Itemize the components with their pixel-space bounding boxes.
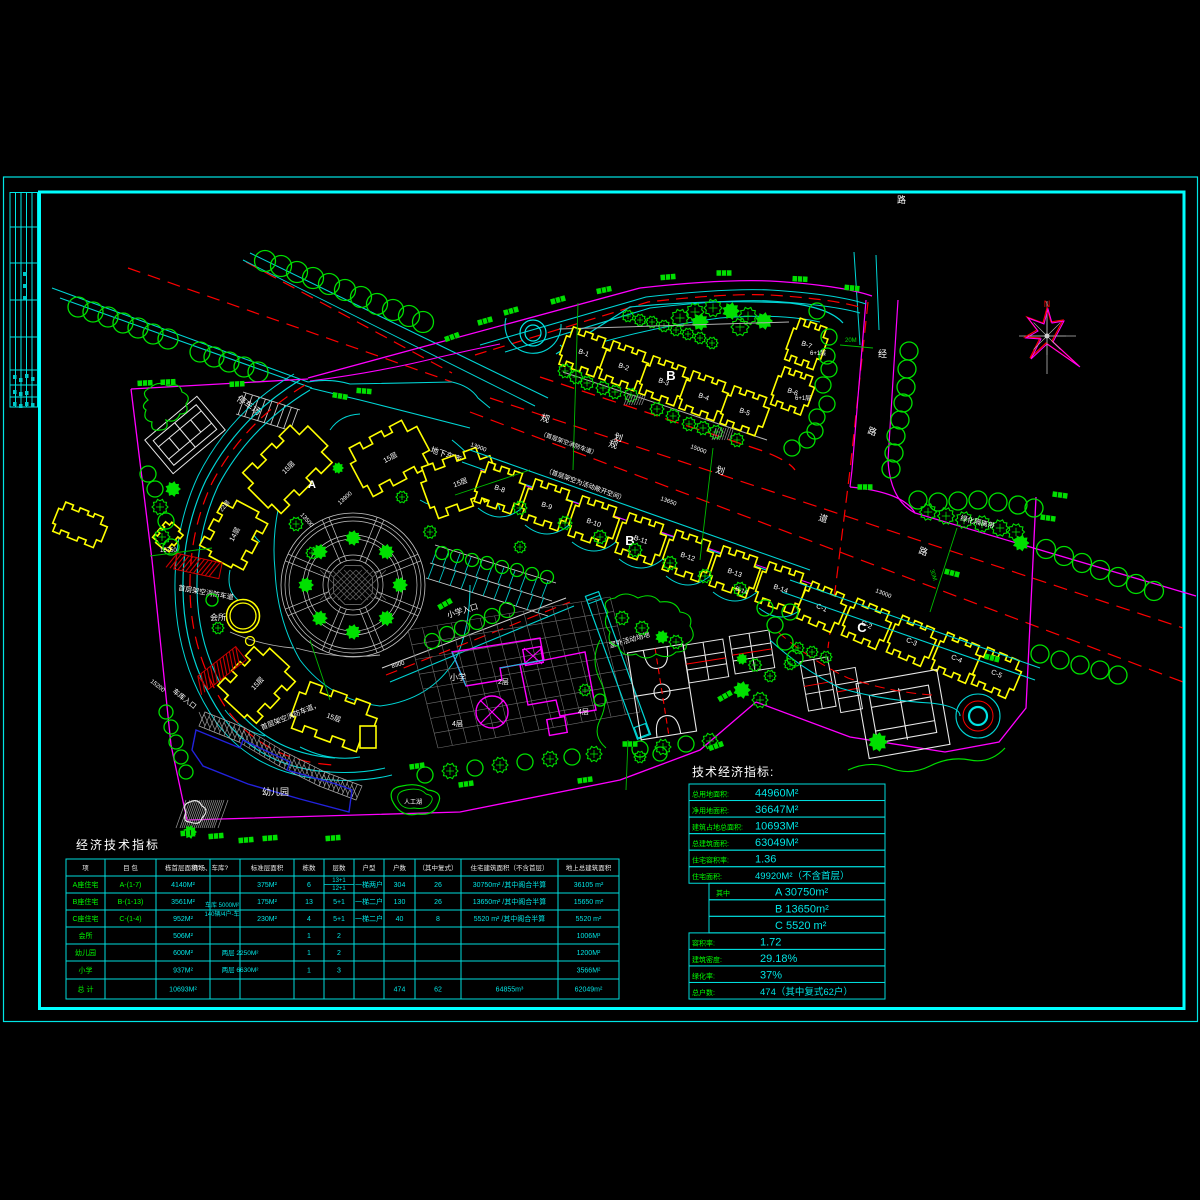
svg-text:幼儿园: 幼儿园 xyxy=(262,786,289,797)
svg-text:6+1层: 6+1层 xyxy=(795,395,811,402)
svg-text:2: 2 xyxy=(337,950,341,957)
svg-text:净用地面积:: 净用地面积: xyxy=(692,806,729,815)
svg-text:2: 2 xyxy=(337,933,341,940)
svg-text:总建筑面积:: 总建筑面积: xyxy=(692,839,729,848)
svg-text:3: 3 xyxy=(337,968,341,975)
svg-text:3566M²: 3566M² xyxy=(577,968,601,975)
svg-text:A座住宅: A座住宅 xyxy=(73,880,99,889)
svg-text:1: 1 xyxy=(307,968,311,975)
svg-text:15650 m²: 15650 m² xyxy=(574,899,604,906)
svg-text:4140M²: 4140M² xyxy=(171,882,195,889)
svg-text:64855m³: 64855m³ xyxy=(496,987,524,994)
svg-text:62: 62 xyxy=(434,987,442,994)
svg-text:项: 项 xyxy=(82,864,89,872)
svg-text:B座住宅: B座住宅 xyxy=(73,897,99,906)
svg-text:建筑占地总面积:: 建筑占地总面积: xyxy=(692,823,743,832)
svg-text:车库 5000M²: 车库 5000M² xyxy=(205,901,239,909)
svg-text:经: 经 xyxy=(878,348,887,359)
svg-text:路: 路 xyxy=(897,194,906,205)
svg-text:175M²: 175M² xyxy=(257,899,278,906)
svg-text:（其中复式）: （其中复式） xyxy=(419,863,458,872)
svg-text:住宅建筑面积（不含首层）: 住宅建筑面积（不含首层） xyxy=(471,863,549,872)
svg-text:住宅容积率:: 住宅容积率: xyxy=(692,856,729,865)
svg-text:4: 4 xyxy=(307,916,311,923)
svg-text:栋数: 栋数 xyxy=(303,863,317,872)
svg-text:幼儿园: 幼儿园 xyxy=(75,948,96,957)
svg-text:总用地面积:: 总用地面积: xyxy=(692,790,729,799)
svg-text:44960M²: 44960M² xyxy=(755,788,799,800)
svg-text:人工湖: 人工湖 xyxy=(404,798,422,806)
svg-text:474: 474 xyxy=(394,987,406,994)
svg-text:10693M²: 10693M² xyxy=(755,821,799,833)
svg-text:B-(1-13): B-(1-13) xyxy=(118,899,144,906)
svg-text:建筑密度:: 建筑密度: xyxy=(692,955,722,964)
svg-text:26: 26 xyxy=(434,882,442,889)
svg-text:两层 2250M²: 两层 2250M² xyxy=(222,949,260,957)
svg-text:62049m²: 62049m² xyxy=(575,987,603,994)
svg-text:技术经济指标:: 技术经济指标: xyxy=(692,764,774,779)
svg-text:5520 m²: 5520 m² xyxy=(576,916,602,923)
svg-text:容积率:: 容积率: xyxy=(692,938,715,947)
svg-text:绿化率:: 绿化率: xyxy=(692,971,715,980)
svg-text:12+1: 12+1 xyxy=(332,886,346,892)
svg-text:经济技术指标: 经济技术指标 xyxy=(76,837,160,852)
svg-text:13650m² /其中阁合半算: 13650m² /其中阁合半算 xyxy=(473,897,547,906)
svg-text:总户数:: 总户数: xyxy=(692,988,715,997)
svg-text:8: 8 xyxy=(436,916,440,923)
svg-text:小学: 小学 xyxy=(450,672,466,682)
svg-text:A: A xyxy=(308,479,316,491)
svg-text:5+1: 5+1 xyxy=(333,899,345,906)
svg-text:1200M²: 1200M² xyxy=(577,950,601,957)
svg-text:A 30750m²: A 30750m² xyxy=(775,887,829,899)
svg-text:1: 1 xyxy=(307,933,311,940)
svg-text:一梯二户: 一梯二户 xyxy=(355,914,383,923)
svg-text:937M²: 937M² xyxy=(173,968,194,975)
svg-text:会所: 会所 xyxy=(210,612,226,622)
svg-text:13: 13 xyxy=(305,899,313,906)
svg-text:130: 130 xyxy=(394,899,406,906)
svg-text:C座住宅: C座住宅 xyxy=(72,914,98,923)
svg-text:标准层面积: 标准层面积 xyxy=(251,863,284,872)
svg-text:C 5520 m²: C 5520 m² xyxy=(775,920,827,932)
svg-text:230M²: 230M² xyxy=(257,916,278,923)
svg-text:B: B xyxy=(666,368,675,383)
svg-text:304: 304 xyxy=(394,882,406,889)
svg-text:5+1: 5+1 xyxy=(333,916,345,923)
svg-text:地上总建筑面积: 地上总建筑面积 xyxy=(566,863,612,872)
svg-text:1006M³: 1006M³ xyxy=(577,933,601,940)
svg-text:26: 26 xyxy=(434,899,442,906)
svg-text:户数: 户数 xyxy=(393,863,407,872)
svg-text:15750: 15750 xyxy=(160,548,177,554)
svg-text:30750m² /其中阁合半算: 30750m² /其中阁合半算 xyxy=(473,880,547,889)
svg-text:目 包: 目 包 xyxy=(123,863,138,872)
svg-text:小学: 小学 xyxy=(79,966,93,975)
svg-text:63049M²: 63049M² xyxy=(755,837,799,849)
svg-text:4层: 4层 xyxy=(452,720,463,728)
svg-text:3561M²: 3561M² xyxy=(171,899,195,906)
svg-text:住宅面积:: 住宅面积: xyxy=(692,872,722,881)
svg-text:C: C xyxy=(857,620,867,635)
svg-text:952M²: 952M² xyxy=(173,916,194,923)
svg-text:474（其中复式62户）: 474（其中复式62户） xyxy=(760,986,853,998)
svg-text:13+1: 13+1 xyxy=(332,878,346,884)
svg-text:49920M²（不含首层）: 49920M²（不含首层） xyxy=(755,870,850,882)
svg-text:一梯二户: 一梯二户 xyxy=(355,897,383,906)
svg-text:一梯两户: 一梯两户 xyxy=(355,880,383,889)
svg-text:375M²: 375M² xyxy=(257,882,278,889)
svg-text:37%: 37% xyxy=(760,969,782,981)
svg-text:2层: 2层 xyxy=(498,678,509,686)
svg-text:其中: 其中 xyxy=(716,889,730,898)
svg-text:6: 6 xyxy=(307,882,311,889)
svg-text:140辆/4户-车: 140辆/4户-车 xyxy=(204,910,239,918)
svg-text:1.72: 1.72 xyxy=(760,936,781,948)
svg-text:29.18%: 29.18% xyxy=(760,953,798,965)
svg-text:6+1层: 6+1层 xyxy=(810,350,826,357)
svg-text:506M²: 506M² xyxy=(173,933,194,940)
svg-text:两层 6630M²: 两层 6630M² xyxy=(222,966,260,974)
svg-text:1: 1 xyxy=(307,950,311,957)
svg-text:600M²: 600M² xyxy=(173,950,194,957)
svg-text:36105 m²: 36105 m² xyxy=(574,882,604,889)
svg-text:10693M²: 10693M² xyxy=(169,987,197,994)
svg-text:A-(1-7): A-(1-7) xyxy=(120,882,142,889)
svg-text:总 计: 总 计 xyxy=(78,985,94,994)
svg-text:层数: 层数 xyxy=(333,863,347,872)
svg-text:C-(1-4): C-(1-4) xyxy=(119,916,141,923)
svg-text:20M: 20M xyxy=(845,338,857,344)
svg-text:户型: 户型 xyxy=(363,863,377,872)
svg-text:4层: 4层 xyxy=(578,708,589,716)
svg-text:会所: 会所 xyxy=(79,931,93,940)
svg-text:商场、车库?: 商场、车库? xyxy=(192,863,229,872)
svg-text:36647M²: 36647M² xyxy=(755,804,799,816)
svg-text:40: 40 xyxy=(396,916,404,923)
svg-text:1.36: 1.36 xyxy=(755,854,776,866)
svg-text:B 13650m²: B 13650m² xyxy=(775,903,829,915)
svg-text:5520 m² /其中阁合半算: 5520 m² /其中阁合半算 xyxy=(474,914,546,923)
